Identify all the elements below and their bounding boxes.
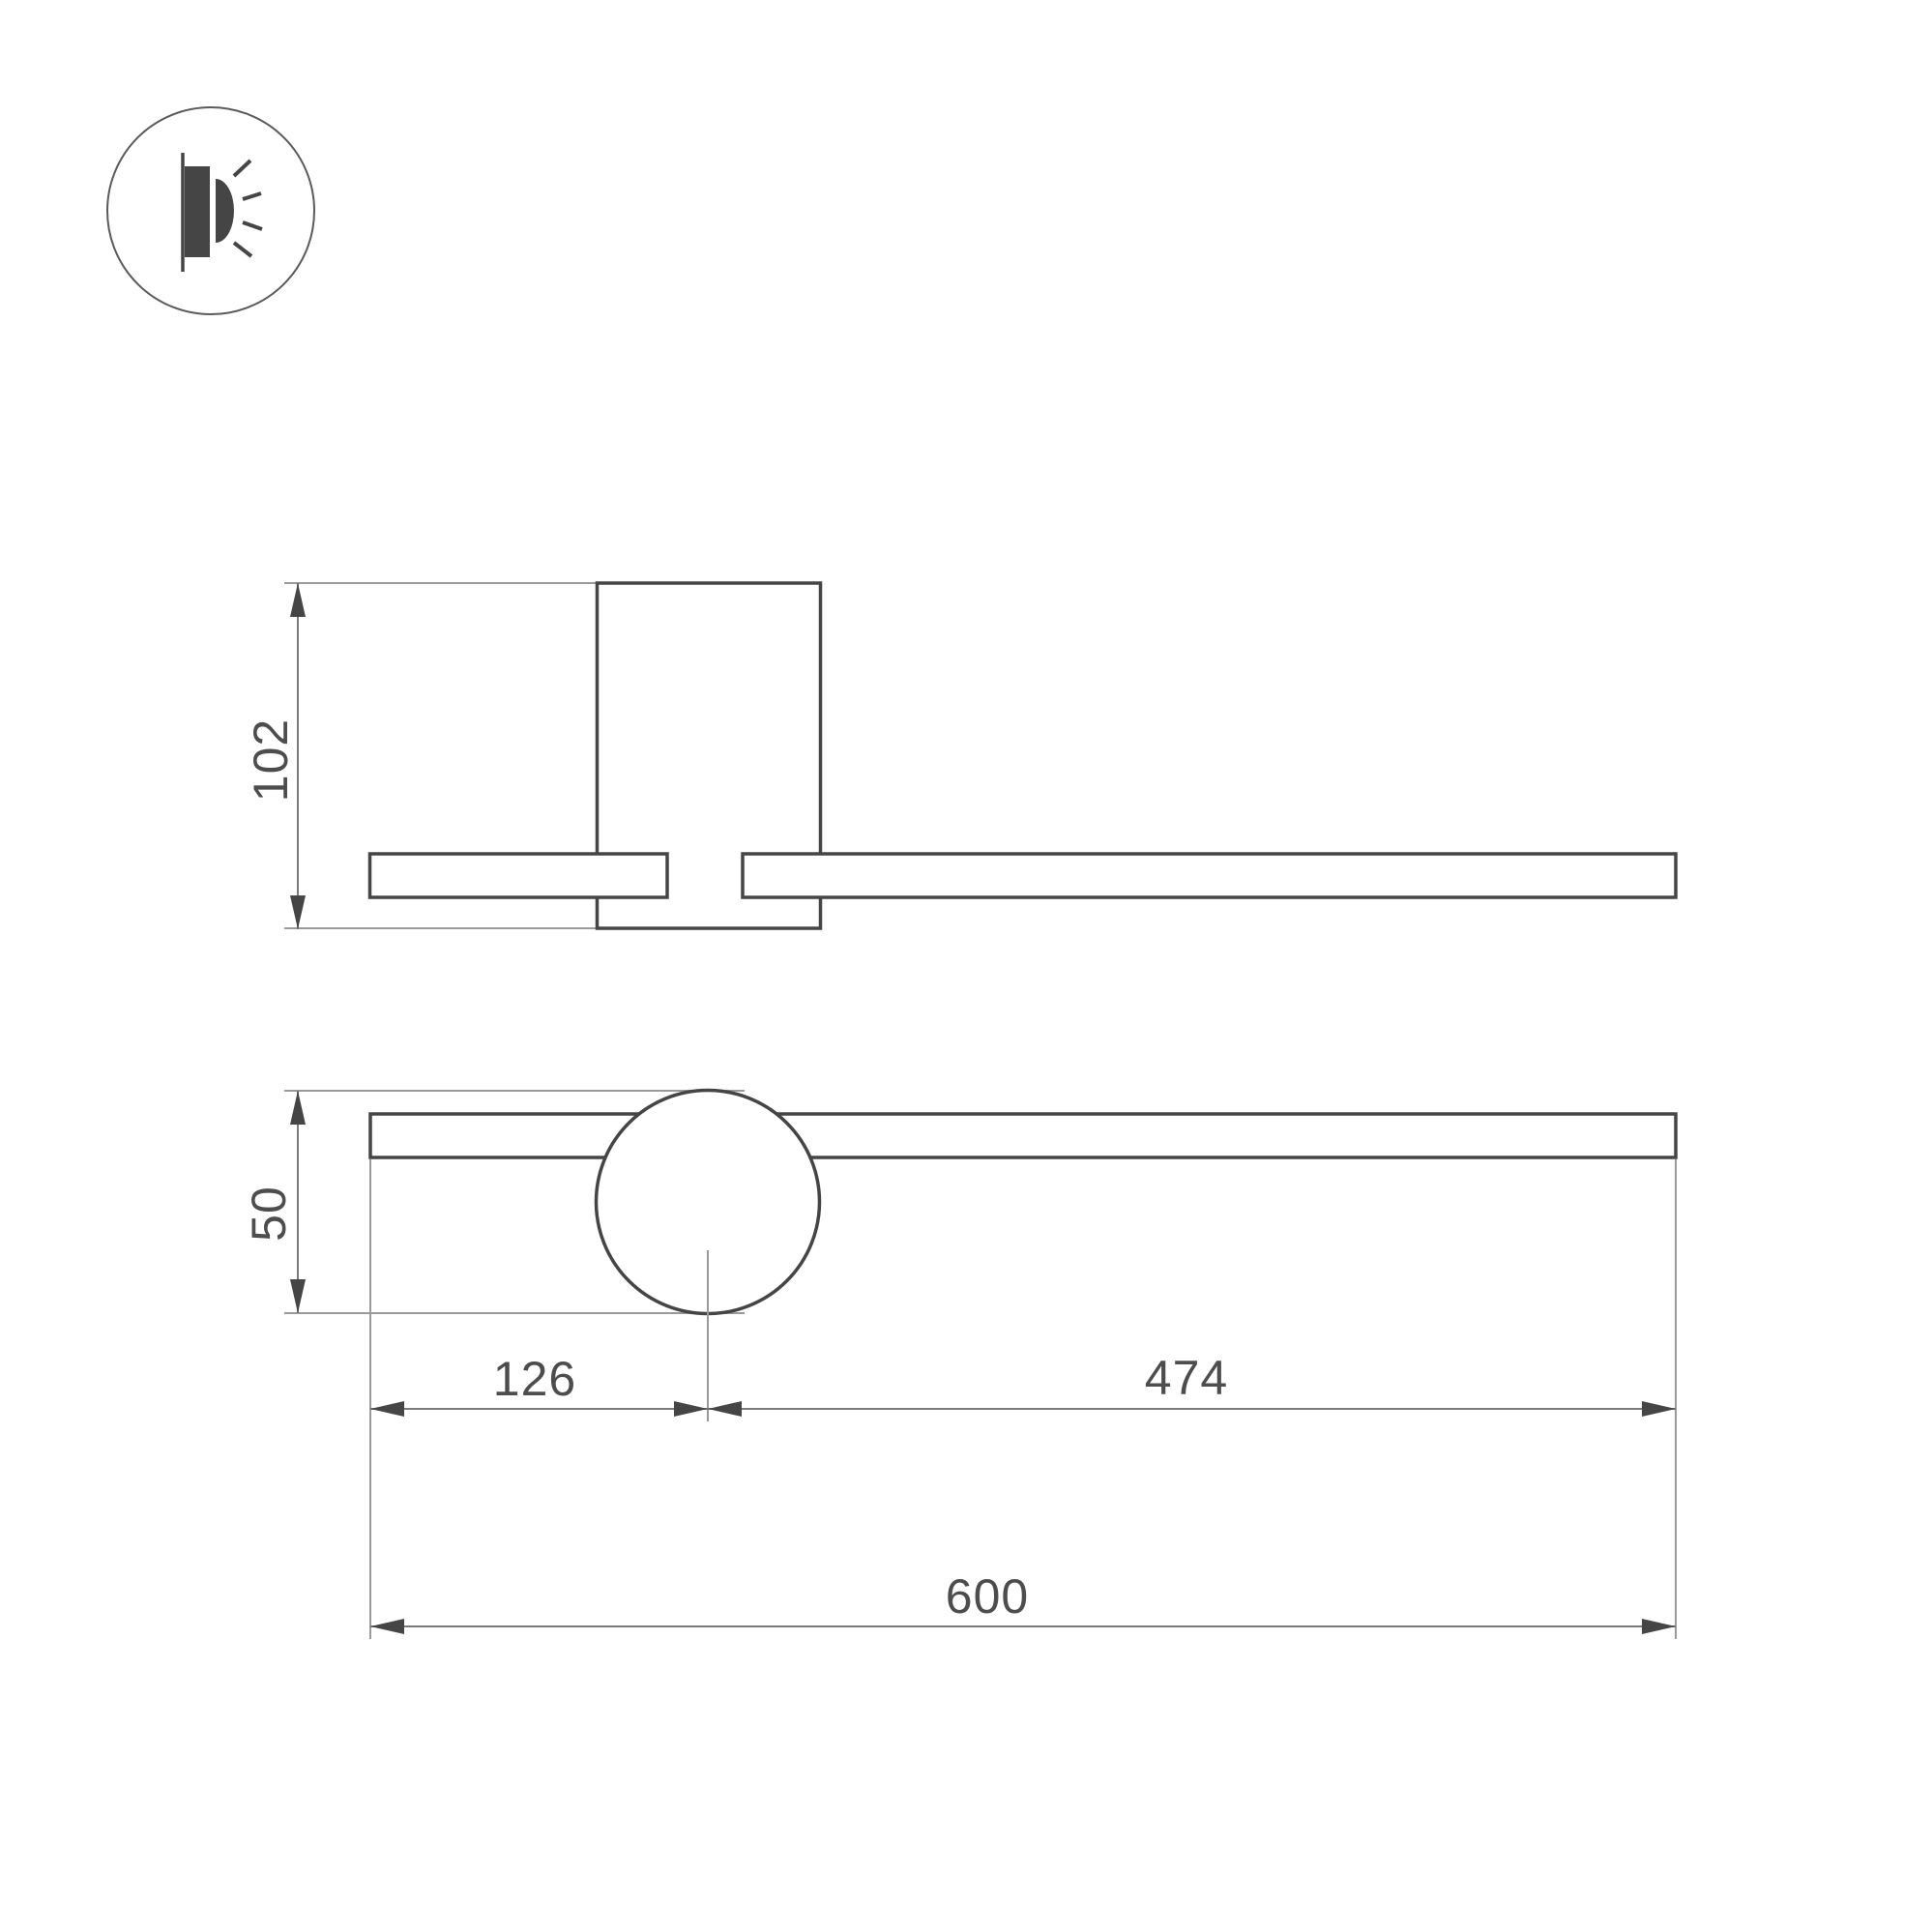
height-dimension-102: 102 [244, 583, 306, 929]
light-bar [370, 1114, 1676, 1157]
arrow-right-icon [1642, 1401, 1676, 1417]
dimension-label-102: 102 [244, 718, 298, 802]
total-dimension-600: 600 [370, 1569, 1676, 1634]
front-view: 50 126 474 600 [242, 1091, 1676, 1640]
drawing-canvas: 102 50 [0, 0, 1932, 1932]
arrow-right-icon [1642, 1619, 1676, 1634]
arrow-left-icon [370, 1401, 404, 1417]
arrow-up-icon [290, 583, 306, 617]
wall-light-icon [107, 107, 314, 314]
arrow-down-icon [290, 1279, 306, 1313]
arrow-down-icon [290, 895, 306, 929]
icon-circle-border [107, 107, 314, 314]
dimension-label-600: 600 [946, 1569, 1029, 1624]
side-view: 102 [244, 583, 1676, 929]
arm-left-segment [370, 854, 668, 897]
span-dimension-474: 474 [708, 1351, 1676, 1417]
arrow-left-icon [370, 1619, 404, 1634]
height-dimension-50: 50 [242, 1091, 306, 1313]
arm-right-segment [743, 854, 1676, 897]
dimension-label-474: 474 [1145, 1351, 1228, 1405]
arrow-left-icon [708, 1401, 742, 1417]
dimension-label-126: 126 [493, 1352, 576, 1406]
dimension-label-50: 50 [242, 1186, 296, 1242]
arrow-up-icon [290, 1091, 306, 1125]
icon-lamp-body [185, 166, 210, 257]
arrow-right-icon [674, 1401, 708, 1417]
technical-drawing: 102 50 [0, 0, 1932, 1932]
offset-dimension-126: 126 [370, 1352, 708, 1417]
